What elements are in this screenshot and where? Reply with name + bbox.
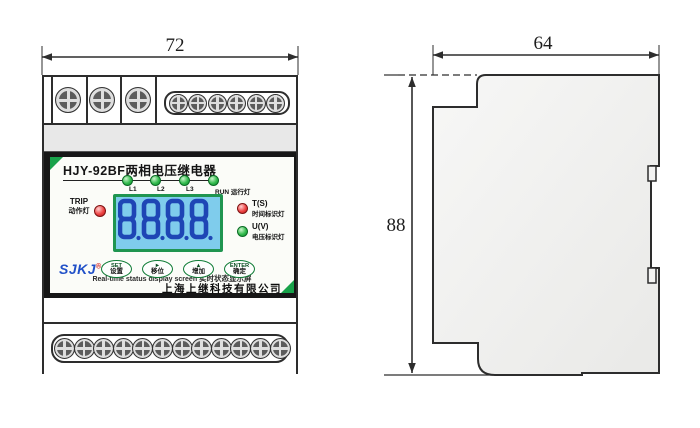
side-profile <box>433 75 659 375</box>
screw-terminal-icon <box>89 87 115 113</box>
technical-drawing: 72 HJY-92BF两相电压继电器 L1L2L3RUN 运行灯 TRIP <box>0 0 700 428</box>
arrow-right-icon <box>649 51 659 59</box>
phase-led <box>150 175 161 186</box>
device-lower-strip <box>44 298 296 324</box>
phase-led-group: RUN 运行灯 <box>208 175 250 196</box>
screw-terminal-icon <box>250 338 271 359</box>
front-panel: HJY-92BF两相电压继电器 L1L2L3RUN 运行灯 TRIP 动作灯 T… <box>44 152 296 298</box>
status-led-label: T(S)时间标识灯 <box>252 199 285 218</box>
company-name: 上海上继科技有限公司 <box>162 281 282 296</box>
brand-logo: SJKJ® <box>59 261 102 277</box>
front-view: HJY-92BF两相电压继电器 L1L2L3RUN 运行灯 TRIP 动作灯 T… <box>42 75 298 374</box>
top-terminal-section <box>44 77 296 125</box>
screw-terminal-icon <box>211 338 232 359</box>
trip-led <box>94 205 106 217</box>
terminal-block-bottom <box>51 334 289 363</box>
status-led-label: U(V)电压标识灯 <box>252 222 285 241</box>
screw-terminal-icon <box>113 338 134 359</box>
status-led-label-zh: 电压标识灯 <box>252 231 285 241</box>
status-led-label-en: T(S) <box>252 199 285 208</box>
corner-accent-icon <box>50 157 63 170</box>
terminal-divider <box>155 77 157 123</box>
screw-terminal-icon <box>93 338 114 359</box>
side-view: 64 88 <box>380 28 680 420</box>
phase-led-label: L3 <box>186 186 194 193</box>
arrow-right-icon <box>288 53 298 61</box>
din-hook-bottom <box>648 268 656 283</box>
screw-terminal-icon <box>55 87 81 113</box>
status-led-label-zh: 时间标识灯 <box>252 208 285 218</box>
screw-terminal-icon <box>125 87 151 113</box>
bottom-terminal-section <box>44 324 296 374</box>
phase-led-group: L2 <box>150 175 165 193</box>
arrow-left-icon <box>42 53 52 61</box>
side-height-value: 88 <box>387 215 406 236</box>
status-led <box>237 226 248 237</box>
screw-terminal-icon <box>191 338 212 359</box>
increase-button[interactable]: ▲增加 <box>183 260 214 278</box>
device-band <box>44 125 296 152</box>
screw-terminal-icon <box>208 94 227 113</box>
lcd-display <box>113 194 223 252</box>
screw-terminal-icon <box>169 94 188 113</box>
screw-terminal-icon <box>188 94 207 113</box>
screw-terminal-icon <box>172 338 193 359</box>
screw-terminal-icon <box>247 94 266 113</box>
phase-led-group: L3 <box>179 175 194 193</box>
arrow-down-icon <box>408 363 416 373</box>
phase-led-label: L2 <box>157 186 165 193</box>
screw-terminal-icon <box>230 338 251 359</box>
screw-terminal-icon <box>270 338 291 359</box>
terminal-divider <box>51 77 53 123</box>
phase-led <box>208 175 219 186</box>
status-led <box>237 203 248 214</box>
phase-led <box>122 175 133 186</box>
screw-terminal-icon <box>54 338 75 359</box>
button-row: SET设置►移位▲增加ENTER确定 <box>101 260 255 278</box>
din-hook-top <box>648 166 656 181</box>
side-width-value: 64 <box>534 33 554 54</box>
phase-led-group: L1 <box>122 175 137 193</box>
screw-terminal-icon <box>152 338 173 359</box>
screw-terminal-icon <box>132 338 153 359</box>
seven-segment-digits <box>118 198 218 246</box>
phase-led <box>179 175 190 186</box>
panel-face: HJY-92BF两相电压继电器 L1L2L3RUN 运行灯 TRIP 动作灯 T… <box>50 157 294 293</box>
arrow-up-icon <box>408 77 416 87</box>
front-width-dimension: 72 <box>30 28 310 76</box>
screw-terminal-icon <box>74 338 95 359</box>
shift-button[interactable]: ►移位 <box>142 260 173 278</box>
status-led-label-en: U(V) <box>252 222 285 231</box>
arrow-left-icon <box>433 51 443 59</box>
terminal-divider <box>86 77 88 123</box>
enter-button[interactable]: ENTER确定 <box>224 260 255 278</box>
phase-led-label: L1 <box>129 186 137 193</box>
screw-terminal-icon <box>227 94 246 113</box>
front-width-value: 72 <box>166 35 185 56</box>
set-button[interactable]: SET设置 <box>101 260 132 278</box>
terminal-block-top <box>164 91 290 115</box>
trip-led-label: TRIP 动作灯 <box>60 197 98 216</box>
terminal-divider <box>120 77 122 123</box>
screw-terminal-icon <box>266 94 285 113</box>
